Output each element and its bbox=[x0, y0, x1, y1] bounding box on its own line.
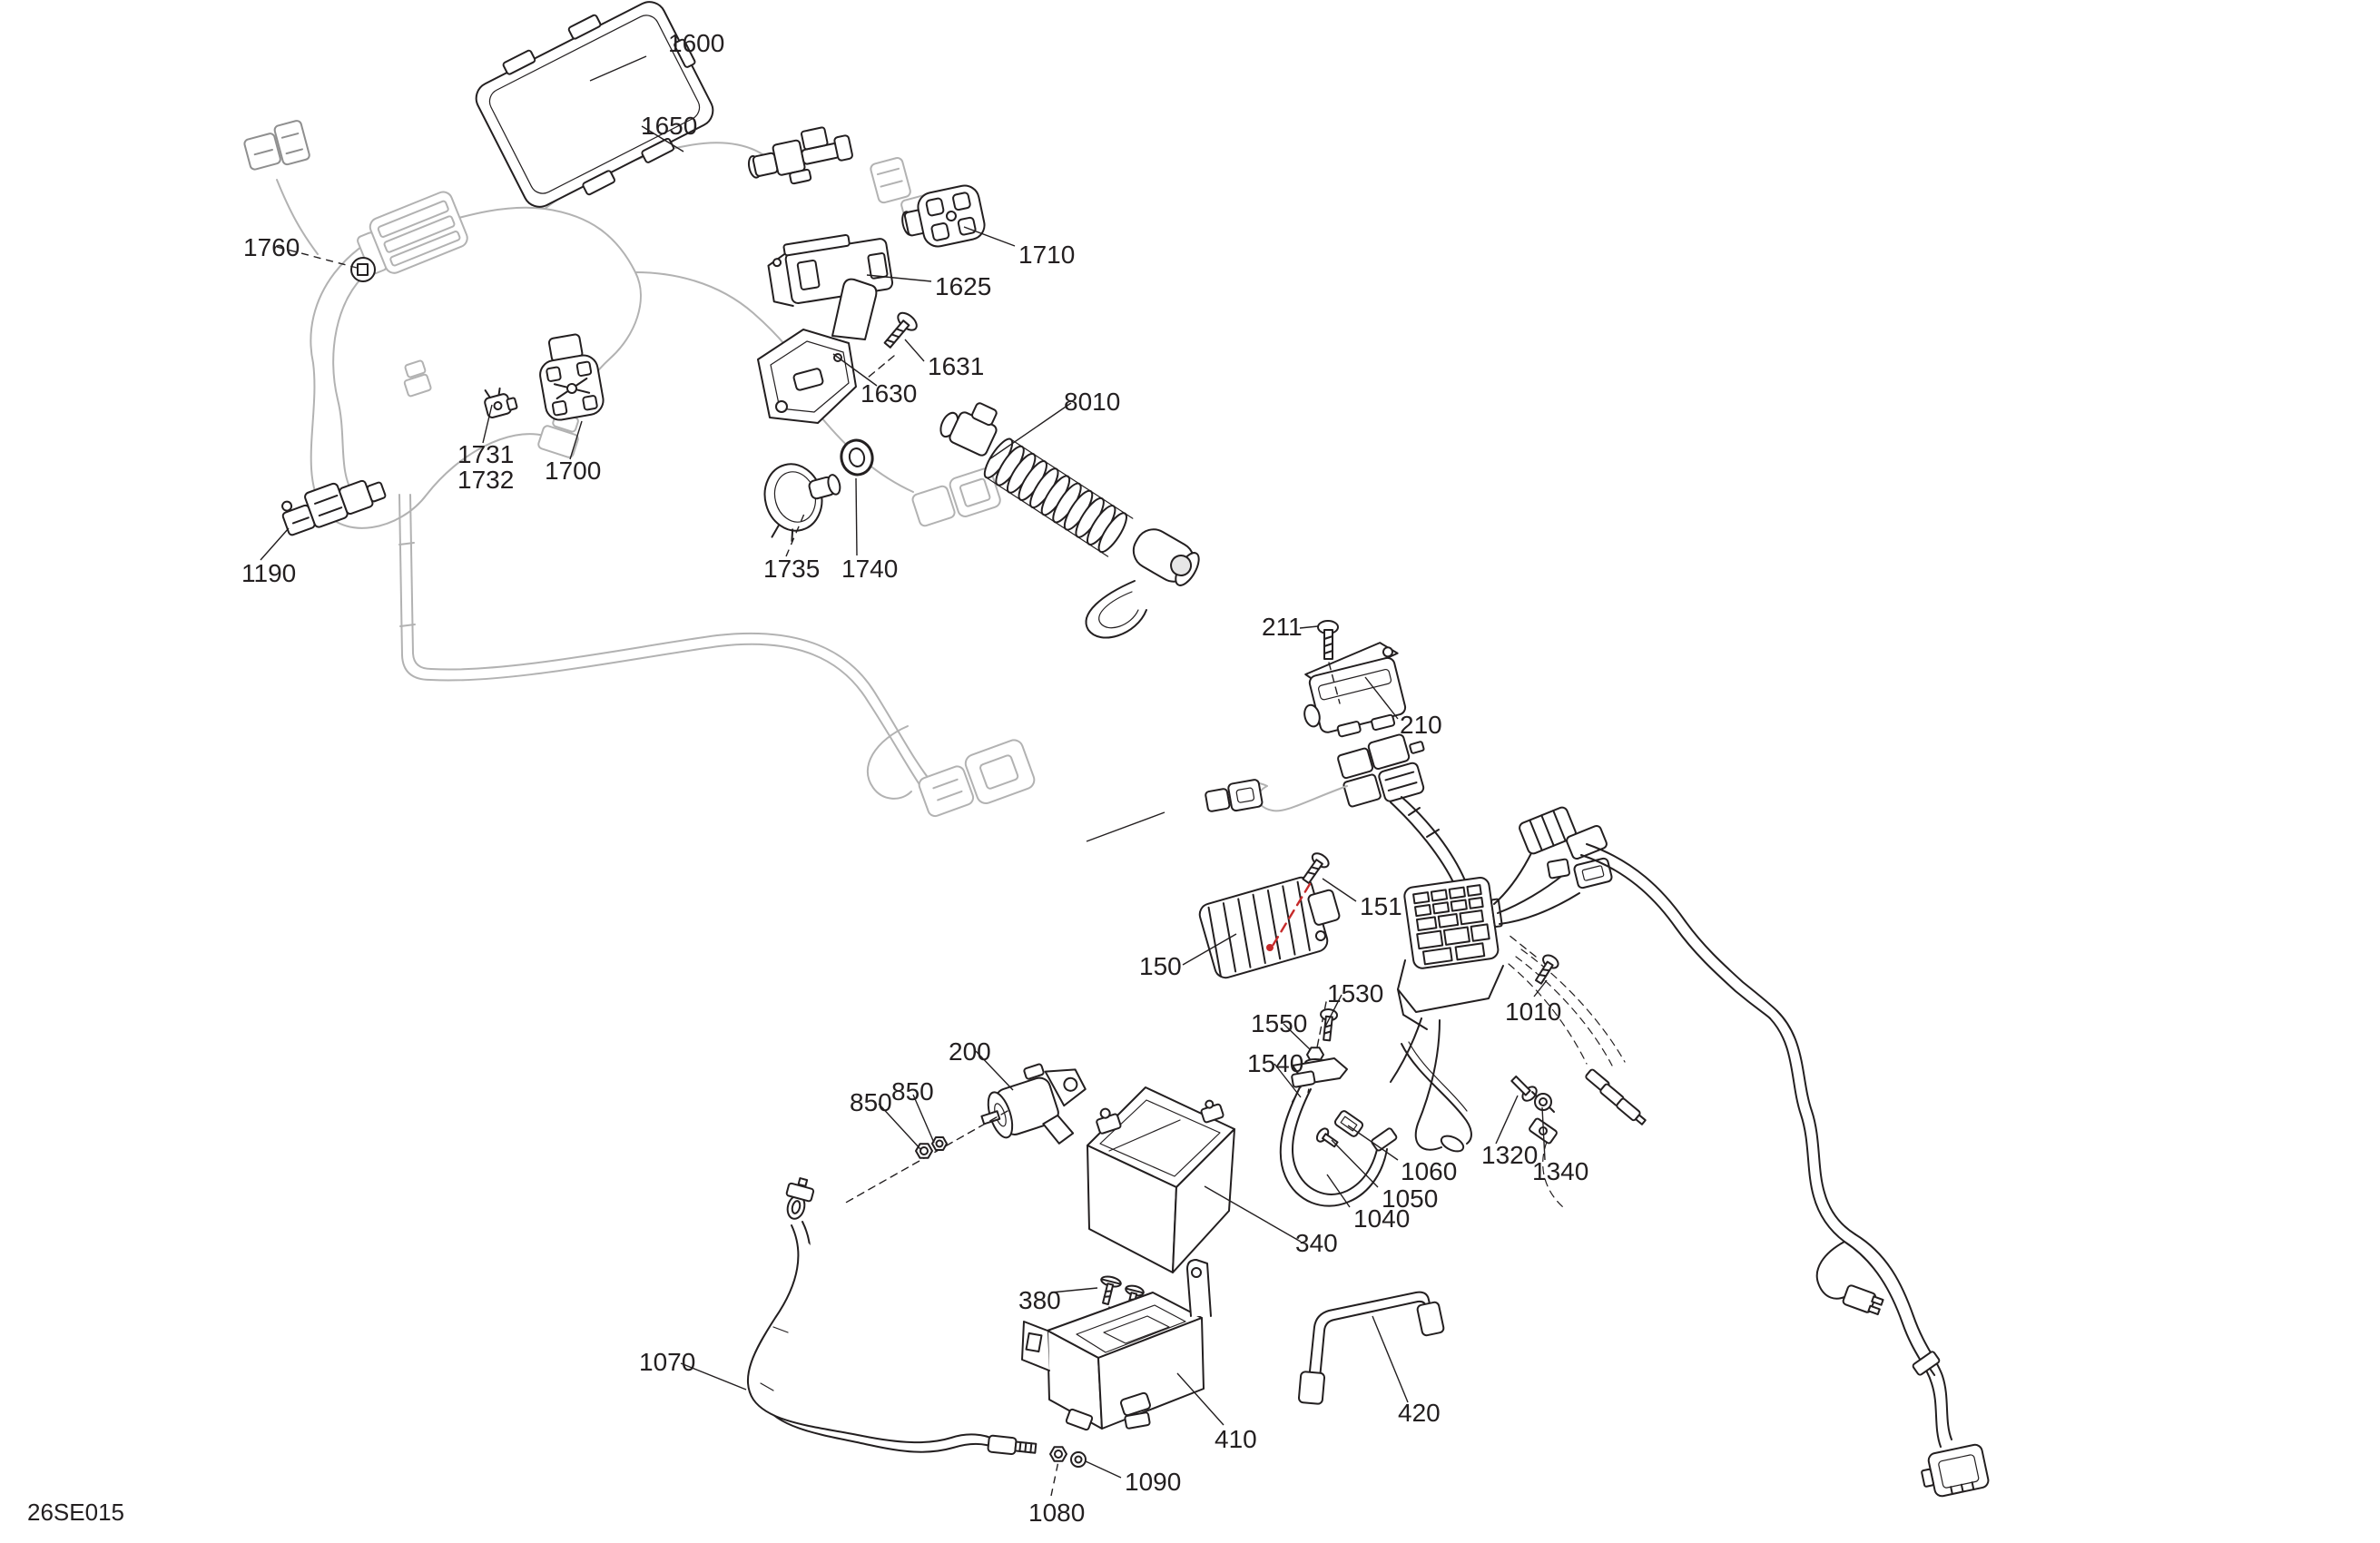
part-label-1700: 1700 bbox=[545, 457, 601, 485]
part-label-1320: 1320 bbox=[1481, 1141, 1538, 1169]
part-label-211: 211 bbox=[1262, 613, 1303, 641]
voltage-regulator-150 bbox=[1197, 870, 1347, 980]
part-label-210: 210 bbox=[1400, 711, 1442, 739]
part-label-1731: 1731 bbox=[457, 440, 514, 468]
part-label-150: 150 bbox=[1139, 952, 1182, 980]
part-label-1550: 1550 bbox=[1251, 1009, 1307, 1037]
part-label-1735: 1735 bbox=[763, 555, 820, 583]
part-label-1010: 1010 bbox=[1505, 998, 1561, 1026]
part-label-1190: 1190 bbox=[241, 559, 296, 587]
leader-line-1631 bbox=[905, 339, 924, 361]
part-label-850: 850 bbox=[850, 1088, 892, 1116]
ring-1740 bbox=[838, 437, 875, 477]
part-label-1625: 1625 bbox=[935, 272, 991, 300]
fuse-box bbox=[1403, 876, 1507, 969]
leader-line-1320 bbox=[1496, 1096, 1518, 1144]
part-label-410: 410 bbox=[1215, 1425, 1257, 1453]
starter-solenoid-200 bbox=[972, 1053, 1099, 1164]
screw-1530 bbox=[1318, 1008, 1337, 1041]
part-label-1530: 1530 bbox=[1327, 979, 1383, 1007]
part-label-1630: 1630 bbox=[861, 379, 917, 408]
module-210 bbox=[1292, 639, 1414, 745]
leader-line-1080 bbox=[1051, 1461, 1058, 1496]
cap-1735 bbox=[755, 453, 851, 546]
screw-1631 bbox=[868, 310, 920, 378]
part-label-200: 200 bbox=[949, 1037, 991, 1066]
part-label-850: 850 bbox=[891, 1077, 934, 1106]
part-label-1650: 1650 bbox=[641, 112, 697, 140]
front-harness-gray bbox=[277, 102, 933, 799]
tether-key bbox=[1127, 523, 1205, 591]
connector-1700 bbox=[534, 331, 605, 422]
exploded-parts-diagram: 26SE015 16001650171016251760163116308010… bbox=[0, 0, 2380, 1543]
part-label-1600: 1600 bbox=[668, 29, 724, 57]
leader-line-1190 bbox=[261, 528, 289, 560]
part-label-1060: 1060 bbox=[1401, 1157, 1457, 1185]
nut-1080 bbox=[1050, 1447, 1067, 1461]
screw-1010 bbox=[1509, 935, 1560, 986]
battery-cable-1070 bbox=[748, 1175, 1086, 1467]
washer-1090 bbox=[1071, 1452, 1086, 1467]
part-label-1340: 1340 bbox=[1532, 1157, 1588, 1185]
part-label-420: 420 bbox=[1398, 1399, 1441, 1427]
parts-diagram-page: 26SE015 16001650171016251760163116308010… bbox=[0, 0, 2380, 1543]
part-label-1040: 1040 bbox=[1353, 1204, 1410, 1233]
part-label-1710: 1710 bbox=[1018, 241, 1075, 269]
connector-1710 bbox=[898, 183, 988, 253]
part-label-1090: 1090 bbox=[1125, 1468, 1181, 1496]
leader-line-211 bbox=[1300, 626, 1318, 628]
screw-1320 bbox=[1509, 1073, 1539, 1104]
battery-340 bbox=[1087, 1087, 1234, 1273]
part-label-380: 380 bbox=[1018, 1286, 1061, 1314]
part-label-1631: 1631 bbox=[928, 352, 984, 380]
nut-1340 bbox=[1532, 1092, 1554, 1112]
leader-line-1090 bbox=[1086, 1461, 1121, 1478]
sensor-assembly-1650 bbox=[744, 123, 856, 192]
reference-line bbox=[1087, 812, 1165, 841]
leader-line-1740 bbox=[856, 478, 857, 555]
part-label-340: 340 bbox=[1295, 1229, 1338, 1257]
part-label-1080: 1080 bbox=[1028, 1499, 1085, 1527]
clip-1760 bbox=[351, 258, 375, 281]
part-label-1732: 1732 bbox=[457, 466, 514, 494]
leader-line-8010 bbox=[989, 403, 1071, 459]
part-label-151: 151 bbox=[1360, 892, 1402, 920]
part-label-1070: 1070 bbox=[639, 1348, 695, 1376]
clip-1731-1732 bbox=[482, 384, 518, 418]
part-label-1760: 1760 bbox=[243, 233, 300, 261]
part-label-8010: 8010 bbox=[1064, 388, 1120, 416]
cable-lug bbox=[1371, 1127, 1397, 1151]
hold-down-strap-420 bbox=[1299, 1292, 1445, 1404]
part-label-1540: 1540 bbox=[1247, 1049, 1303, 1077]
diagram-code: 26SE015 bbox=[27, 1499, 124, 1526]
tether-cord-8010 bbox=[937, 392, 1205, 638]
part-label-1740: 1740 bbox=[841, 555, 898, 583]
